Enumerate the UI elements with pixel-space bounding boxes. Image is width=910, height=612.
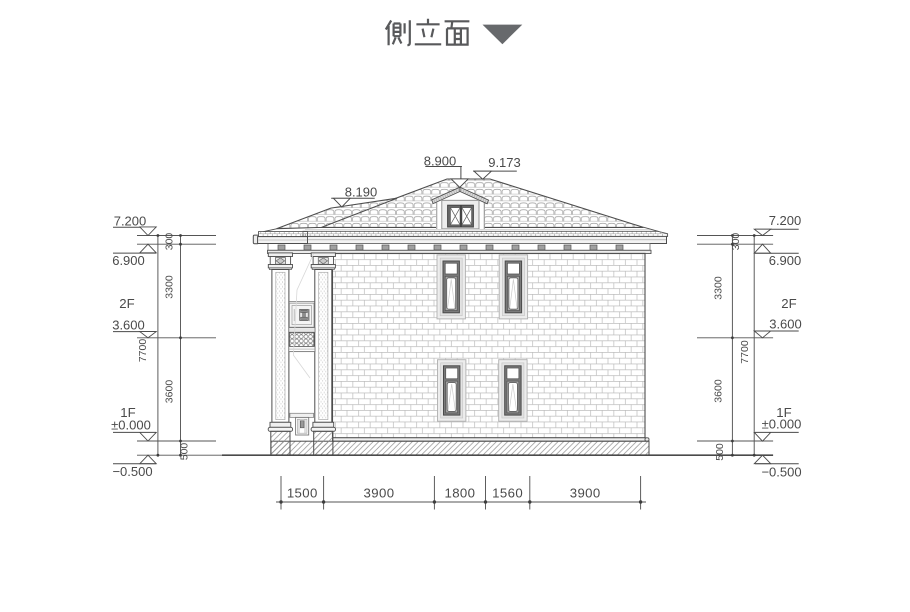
svg-text:1500: 1500 — [287, 485, 318, 500]
svg-text:3900: 3900 — [364, 485, 395, 500]
svg-text:−0.500: −0.500 — [112, 464, 152, 479]
svg-text:8.190: 8.190 — [345, 185, 378, 200]
svg-text:9.173: 9.173 — [488, 155, 521, 170]
svg-text:1560: 1560 — [492, 485, 523, 500]
svg-text:6.900: 6.900 — [112, 253, 145, 268]
svg-text:3600: 3600 — [713, 379, 725, 403]
svg-text:7700: 7700 — [739, 340, 751, 364]
svg-text:2F: 2F — [781, 296, 796, 311]
svg-text:300: 300 — [163, 233, 175, 251]
svg-text:7.200: 7.200 — [114, 213, 147, 228]
svg-text:500: 500 — [714, 443, 726, 461]
svg-text:3600: 3600 — [163, 380, 175, 404]
svg-text:3300: 3300 — [163, 275, 175, 299]
svg-text:3.600: 3.600 — [112, 318, 145, 333]
svg-text:1800: 1800 — [444, 485, 475, 500]
svg-text:3900: 3900 — [570, 485, 601, 500]
svg-text:±0.000: ±0.000 — [111, 417, 151, 432]
svg-text:500: 500 — [179, 443, 191, 461]
svg-text:3300: 3300 — [713, 276, 725, 300]
svg-text:6.900: 6.900 — [769, 253, 802, 268]
svg-text:300: 300 — [730, 233, 742, 251]
svg-text:7700: 7700 — [137, 339, 149, 363]
svg-text:2F: 2F — [119, 296, 134, 311]
svg-text:7.200: 7.200 — [769, 213, 802, 228]
svg-text:3.600: 3.600 — [769, 317, 802, 332]
svg-text:±0.000: ±0.000 — [762, 417, 802, 432]
svg-text:−0.500: −0.500 — [761, 465, 801, 480]
